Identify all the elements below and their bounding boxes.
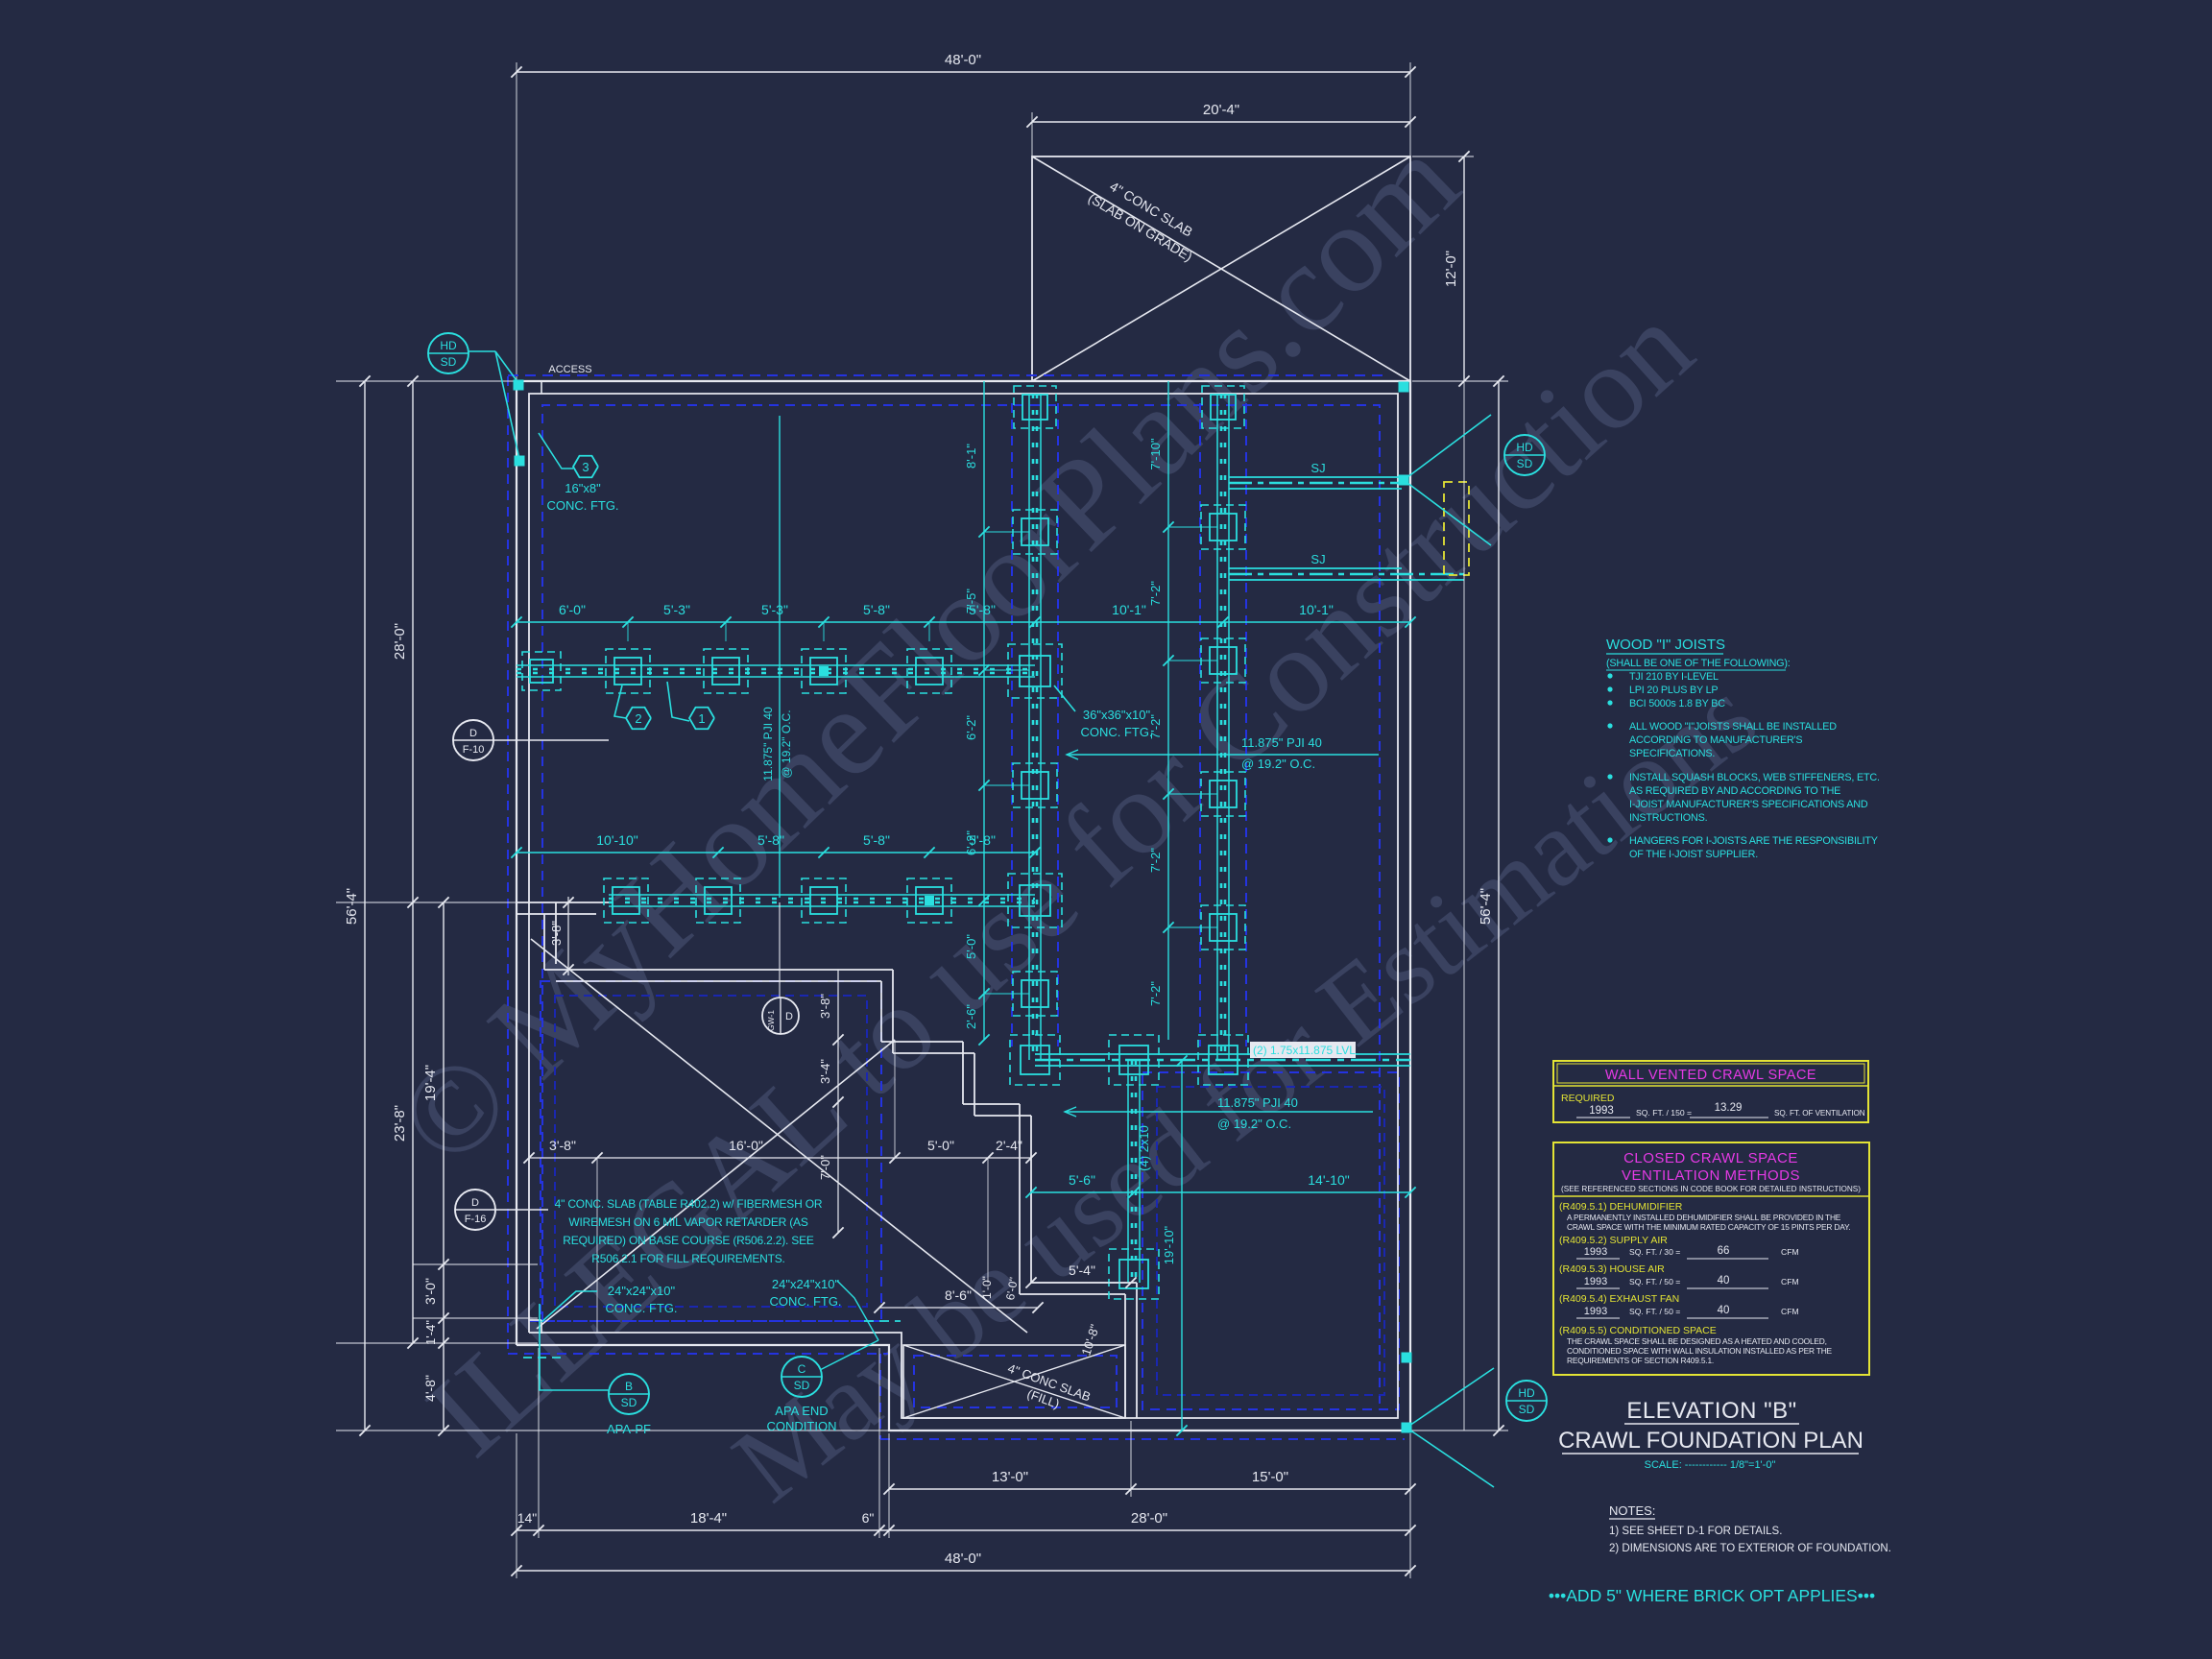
svg-text:SQ. FT. / 30 =: SQ. FT. / 30 = bbox=[1629, 1247, 1680, 1257]
svg-text:1'-0": 1'-0" bbox=[980, 1276, 994, 1299]
svg-text:(2) 1.75x11.875 LVL: (2) 1.75x11.875 LVL bbox=[1253, 1044, 1356, 1057]
svg-text:LPI 20 PLUS BY LP: LPI 20 PLUS BY LP bbox=[1629, 685, 1718, 696]
svg-text:7'-2": 7'-2" bbox=[1148, 981, 1163, 1006]
svg-text:REQUIRED) ON BASE COURSE (R506: REQUIRED) ON BASE COURSE (R506.2.2). SEE bbox=[563, 1234, 814, 1247]
svg-text:@ 19.2" O.C.: @ 19.2" O.C. bbox=[1241, 757, 1315, 771]
svg-text:66: 66 bbox=[1718, 1245, 1730, 1257]
svg-text:5'-3": 5'-3" bbox=[761, 602, 788, 617]
svg-text:ACCORDING TO MANUFACTURER'S: ACCORDING TO MANUFACTURER'S bbox=[1629, 734, 1802, 746]
svg-text:CRAWL FOUNDATION PLAN: CRAWL FOUNDATION PLAN bbox=[1558, 1428, 1863, 1454]
svg-text:40: 40 bbox=[1718, 1305, 1730, 1316]
svg-text:23'-8": 23'-8" bbox=[392, 1105, 408, 1142]
svg-text:SD: SD bbox=[621, 1396, 637, 1409]
svg-text:3'-8": 3'-8" bbox=[549, 1138, 576, 1153]
svg-text:7'-2": 7'-2" bbox=[1148, 581, 1163, 606]
svg-text:D: D bbox=[471, 1197, 479, 1209]
svg-text:TJI 210 BY I-LEVEL: TJI 210 BY I-LEVEL bbox=[1629, 671, 1719, 683]
svg-text:I-JOIST MANUFACTURER'S SPECIFI: I-JOIST MANUFACTURER'S SPECIFICATIONS AN… bbox=[1629, 799, 1868, 810]
svg-text:SPECIFICATIONS.: SPECIFICATIONS. bbox=[1629, 748, 1715, 759]
svg-text:11.875" PJI 40: 11.875" PJI 40 bbox=[1241, 735, 1322, 750]
svg-text:@ 19.2" O.C.: @ 19.2" O.C. bbox=[1217, 1117, 1291, 1131]
svg-text:56'-4": 56'-4" bbox=[1478, 888, 1494, 925]
svg-text:CFM: CFM bbox=[1781, 1277, 1799, 1286]
svg-text:SQ. FT. OF VENTILATION: SQ. FT. OF VENTILATION bbox=[1774, 1109, 1865, 1118]
svg-text:1) SEE SHEET D-1 FOR DETAILS.: 1) SEE SHEET D-1 FOR DETAILS. bbox=[1609, 1526, 1782, 1537]
svg-text:SD: SD bbox=[794, 1379, 810, 1392]
svg-text:ALL WOOD "I"JOISTS SHALL BE IN: ALL WOOD "I"JOISTS SHALL BE INSTALLED bbox=[1629, 721, 1837, 733]
svg-text:(R409.5.2) SUPPLY AIR: (R409.5.2) SUPPLY AIR bbox=[1559, 1235, 1668, 1246]
svg-text:8'-1": 8'-1" bbox=[964, 444, 978, 469]
svg-text:SD: SD bbox=[441, 355, 457, 369]
svg-text:CONDITION: CONDITION bbox=[767, 1419, 837, 1433]
svg-text:6'-2": 6'-2" bbox=[964, 715, 978, 740]
svg-text:B: B bbox=[625, 1380, 633, 1393]
svg-text:7'-2": 7'-2" bbox=[1148, 848, 1163, 873]
svg-text:INSTALL SQUASH BLOCKS, WEB STI: INSTALL SQUASH BLOCKS, WEB STIFFENERS, E… bbox=[1629, 772, 1880, 783]
svg-text:19'-4": 19'-4" bbox=[422, 1065, 439, 1101]
svg-text:14": 14" bbox=[517, 1510, 538, 1526]
svg-text:13.29: 13.29 bbox=[1715, 1102, 1743, 1114]
svg-text:(R409.5.1) DEHUMIDIFIER: (R409.5.1) DEHUMIDIFIER bbox=[1559, 1201, 1683, 1213]
svg-text:8'-6": 8'-6" bbox=[945, 1287, 972, 1303]
svg-text:SQ. FT. / 150 =: SQ. FT. / 150 = bbox=[1636, 1108, 1692, 1118]
svg-text:6": 6" bbox=[862, 1510, 875, 1526]
svg-text:48'-0": 48'-0" bbox=[945, 52, 981, 68]
svg-text:BCI 5000s 1.8 BY BC: BCI 5000s 1.8 BY BC bbox=[1629, 698, 1725, 709]
svg-text:CONDITIONED SPACE WITH WALL IN: CONDITIONED SPACE WITH WALL INSULATION I… bbox=[1567, 1346, 1833, 1356]
svg-text:5'-6": 5'-6" bbox=[1069, 1172, 1095, 1188]
svg-text:48'-0": 48'-0" bbox=[945, 1551, 981, 1567]
svg-text:CRAWL SPACE WITH THE MINIMUM R: CRAWL SPACE WITH THE MINIMUM RATED CAPAC… bbox=[1567, 1222, 1850, 1232]
svg-text:2) DIMENSIONS ARE TO EXTERIOR: 2) DIMENSIONS ARE TO EXTERIOR OF FOUNDAT… bbox=[1609, 1543, 1891, 1554]
svg-text:2'-4": 2'-4" bbox=[996, 1138, 1022, 1153]
svg-text:4'-8": 4'-8" bbox=[422, 1375, 438, 1402]
svg-text:HANGERS FOR I-JOISTS ARE THE R: HANGERS FOR I-JOISTS ARE THE RESPONSIBIL… bbox=[1629, 835, 1878, 847]
svg-text:•••ADD 5" WHERE BRICK OPT APPL: •••ADD 5" WHERE BRICK OPT APPLIES••• bbox=[1549, 1586, 1875, 1605]
svg-text:(R409.5.5) CONDITIONED SPACE: (R409.5.5) CONDITIONED SPACE bbox=[1559, 1325, 1717, 1336]
svg-text:CLOSED CRAWL SPACE: CLOSED CRAWL SPACE bbox=[1623, 1150, 1798, 1166]
svg-text:(R409.5.3) HOUSE AIR: (R409.5.3) HOUSE AIR bbox=[1559, 1263, 1665, 1275]
svg-text:CONC. FTG.: CONC. FTG. bbox=[546, 498, 618, 513]
svg-text:1993: 1993 bbox=[1584, 1276, 1607, 1287]
svg-text:1993: 1993 bbox=[1589, 1105, 1614, 1117]
svg-text:THE CRAWL SPACE SHALL BE DESIG: THE CRAWL SPACE SHALL BE DESIGNED AS A H… bbox=[1567, 1336, 1827, 1346]
svg-text:APA-PF: APA-PF bbox=[607, 1422, 651, 1436]
svg-text:VENTILATION METHODS: VENTILATION METHODS bbox=[1622, 1167, 1800, 1184]
svg-text:16'-0": 16'-0" bbox=[729, 1138, 763, 1153]
svg-text:CONC. FTG.: CONC. FTG. bbox=[769, 1294, 841, 1309]
svg-text:(4) 2x10: (4) 2x10 bbox=[1137, 1125, 1151, 1171]
svg-text:WIREMESH ON 6 MIL VAPOR RETARD: WIREMESH ON 6 MIL VAPOR RETARDER (AS bbox=[568, 1215, 807, 1229]
svg-text:CFM: CFM bbox=[1781, 1307, 1799, 1316]
svg-text:24"x24"x10": 24"x24"x10" bbox=[772, 1277, 840, 1291]
svg-text:10'-1": 10'-1" bbox=[1112, 602, 1146, 617]
svg-text:3'-0": 3'-0" bbox=[422, 1278, 438, 1305]
svg-text:10'-1": 10'-1" bbox=[1299, 602, 1334, 617]
svg-text:WALL VENTED CRAWL SPACE: WALL VENTED CRAWL SPACE bbox=[1605, 1068, 1816, 1083]
svg-text:3'-8": 3'-8" bbox=[549, 921, 564, 946]
svg-text:5'-0": 5'-0" bbox=[927, 1138, 954, 1153]
svg-text:16"x8": 16"x8" bbox=[565, 481, 601, 495]
svg-text:28'-0": 28'-0" bbox=[392, 623, 408, 660]
svg-text:3'-4": 3'-4" bbox=[818, 1059, 832, 1084]
svg-text:REQUIREMENTS OF SECTION R409.5: REQUIREMENTS OF SECTION R409.5.1. bbox=[1567, 1356, 1714, 1365]
svg-text:SQ. FT. / 50 =: SQ. FT. / 50 = bbox=[1629, 1307, 1680, 1316]
svg-text:(SEE REFERENCED SECTIONS IN CO: (SEE REFERENCED SECTIONS IN CODE BOOK FO… bbox=[1561, 1185, 1861, 1193]
svg-text:F-16: F-16 bbox=[465, 1214, 487, 1225]
svg-text:18'-4": 18'-4" bbox=[690, 1510, 727, 1527]
svg-text:6'-0": 6'-0" bbox=[559, 602, 586, 617]
svg-text:SCALE: ------------ 1/8"=1'-0: SCALE: ------------ 1/8"=1'-0" bbox=[1645, 1459, 1776, 1471]
svg-text:REQUIRED: REQUIRED bbox=[1561, 1093, 1615, 1104]
svg-text:ACCESS: ACCESS bbox=[548, 364, 591, 375]
svg-text:12'-0": 12'-0" bbox=[1443, 251, 1459, 287]
svg-text:4" CONC. SLAB (TABLE R402.2) w: 4" CONC. SLAB (TABLE R402.2) w/ FIBERMES… bbox=[555, 1197, 823, 1211]
svg-text:19'-10": 19'-10" bbox=[1162, 1225, 1176, 1264]
svg-text:CONC. FTG.: CONC. FTG. bbox=[1080, 725, 1152, 739]
svg-text:5'-0": 5'-0" bbox=[964, 934, 978, 959]
svg-text:CFM: CFM bbox=[1781, 1247, 1799, 1257]
svg-text:HD: HD bbox=[440, 339, 457, 352]
svg-text:11.875" PJI 40: 11.875" PJI 40 bbox=[761, 707, 775, 781]
svg-text:5'-8": 5'-8" bbox=[757, 832, 784, 848]
svg-text:5'-3": 5'-3" bbox=[663, 602, 690, 617]
svg-text:D: D bbox=[785, 1011, 793, 1022]
svg-text:INSTRUCTIONS.: INSTRUCTIONS. bbox=[1629, 812, 1708, 824]
svg-text:SD: SD bbox=[1517, 457, 1533, 470]
svg-text:A PERMANENTLY INSTALLED DEHUMI: A PERMANENTLY INSTALLED DEHUMIDIFIER SHA… bbox=[1567, 1213, 1841, 1222]
svg-text:40: 40 bbox=[1718, 1275, 1730, 1286]
svg-text:1993: 1993 bbox=[1584, 1306, 1607, 1317]
svg-text:6'-2": 6'-2" bbox=[964, 830, 978, 855]
svg-text:28'-0": 28'-0" bbox=[1131, 1510, 1167, 1527]
svg-text:2: 2 bbox=[635, 711, 641, 726]
svg-text:24"x24"x10": 24"x24"x10" bbox=[608, 1284, 676, 1298]
svg-text:CONC. FTG.: CONC. FTG. bbox=[605, 1301, 677, 1315]
svg-text:20'-4": 20'-4" bbox=[1203, 102, 1239, 118]
svg-text:5'-4": 5'-4" bbox=[1069, 1262, 1095, 1278]
svg-text:ELEVATION "B": ELEVATION "B" bbox=[1626, 1398, 1796, 1424]
svg-text:C: C bbox=[798, 1362, 806, 1376]
svg-text:56'-4": 56'-4" bbox=[344, 888, 360, 925]
svg-text:APA END: APA END bbox=[775, 1404, 828, 1418]
svg-text:WOOD "I" JOISTS: WOOD "I" JOISTS bbox=[1606, 637, 1725, 653]
svg-text:5'-8": 5'-8" bbox=[863, 832, 890, 848]
svg-text:OF THE I-JOIST SUPPLIER.: OF THE I-JOIST SUPPLIER. bbox=[1629, 849, 1758, 860]
svg-text:2'-6": 2'-6" bbox=[964, 1004, 978, 1029]
svg-text:GW-1: GW-1 bbox=[766, 1010, 776, 1031]
svg-text:R506.2.1 FOR FILL REQUIREMENTS: R506.2.1 FOR FILL REQUIREMENTS. bbox=[591, 1252, 784, 1265]
svg-text:11.875" PJI 40: 11.875" PJI 40 bbox=[1217, 1095, 1298, 1110]
svg-text:AS REQUIRED BY AND ACCORDING T: AS REQUIRED BY AND ACCORDING TO THE bbox=[1629, 785, 1840, 797]
svg-text:SD: SD bbox=[1519, 1403, 1535, 1416]
svg-text:7'-10": 7'-10" bbox=[1148, 438, 1163, 470]
svg-text:36"x36"x10": 36"x36"x10" bbox=[1083, 708, 1151, 722]
svg-text:3: 3 bbox=[582, 460, 589, 474]
svg-text:5'-8": 5'-8" bbox=[863, 602, 890, 617]
svg-text:13'-0": 13'-0" bbox=[992, 1469, 1028, 1485]
svg-text:3'-8": 3'-8" bbox=[818, 994, 832, 1019]
svg-text:SJ: SJ bbox=[1310, 461, 1325, 475]
svg-text:1'-4": 1'-4" bbox=[423, 1320, 438, 1345]
svg-text:15'-0": 15'-0" bbox=[1252, 1469, 1288, 1485]
svg-text:D: D bbox=[469, 728, 477, 739]
svg-text:SJ: SJ bbox=[1310, 552, 1325, 566]
svg-text:1993: 1993 bbox=[1584, 1246, 1607, 1258]
svg-text:(SHALL BE ONE OF THE FOLLOWING: (SHALL BE ONE OF THE FOLLOWING): bbox=[1606, 658, 1791, 669]
svg-text:@ 19.2" O.C.: @ 19.2" O.C. bbox=[780, 709, 793, 778]
svg-text:HD: HD bbox=[1516, 441, 1533, 454]
svg-text:F-10: F-10 bbox=[463, 744, 485, 756]
svg-text:HD: HD bbox=[1518, 1386, 1535, 1400]
svg-text:(R409.5.4) EXHAUST FAN: (R409.5.4) EXHAUST FAN bbox=[1559, 1293, 1679, 1305]
svg-text:10'-10": 10'-10" bbox=[596, 832, 637, 848]
svg-text:NOTES:: NOTES: bbox=[1609, 1503, 1655, 1518]
svg-text:1: 1 bbox=[698, 711, 705, 726]
svg-text:7'-5": 7'-5" bbox=[964, 589, 978, 613]
svg-text:SQ. FT. / 50 =: SQ. FT. / 50 = bbox=[1629, 1277, 1680, 1286]
svg-text:14'-10": 14'-10" bbox=[1308, 1172, 1349, 1188]
svg-text:7'-0": 7'-0" bbox=[818, 1155, 832, 1180]
